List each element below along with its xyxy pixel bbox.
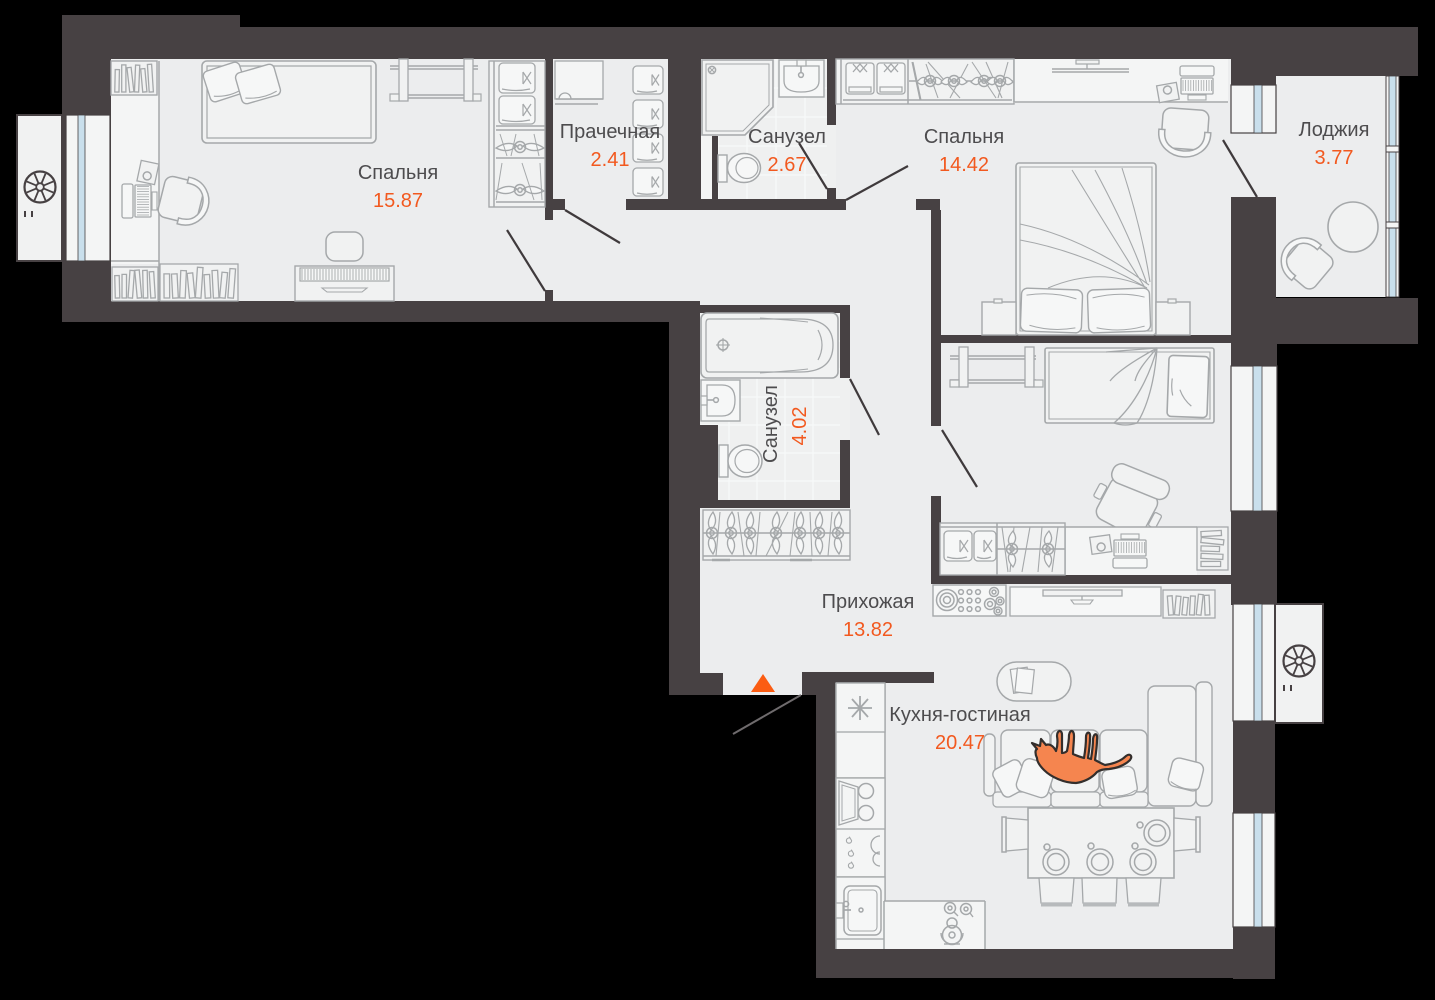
svg-text:Лоджия: Лоджия [1299,119,1370,141]
svg-text:Санузел: Санузел [748,126,826,148]
svg-text:2.67: 2.67 [768,154,807,176]
svg-text:14.42: 14.42 [939,154,989,176]
svg-text:Прихожая: Прихожая [822,591,915,613]
svg-text:Спальня: Спальня [358,162,438,184]
svg-text:13.82: 13.82 [843,619,893,641]
svg-text:2.41: 2.41 [591,149,630,171]
svg-text:15.87: 15.87 [373,190,423,212]
svg-text:3.77: 3.77 [1315,147,1354,169]
svg-text:Прачечная: Прачечная [560,121,660,143]
svg-text:4.02: 4.02 [789,407,811,446]
svg-text:Кухня-гостиная: Кухня-гостиная [889,704,1031,726]
svg-text:20.47: 20.47 [935,732,985,754]
svg-text:Спальня: Спальня [924,126,1004,148]
svg-text:Санузел: Санузел [760,385,782,463]
